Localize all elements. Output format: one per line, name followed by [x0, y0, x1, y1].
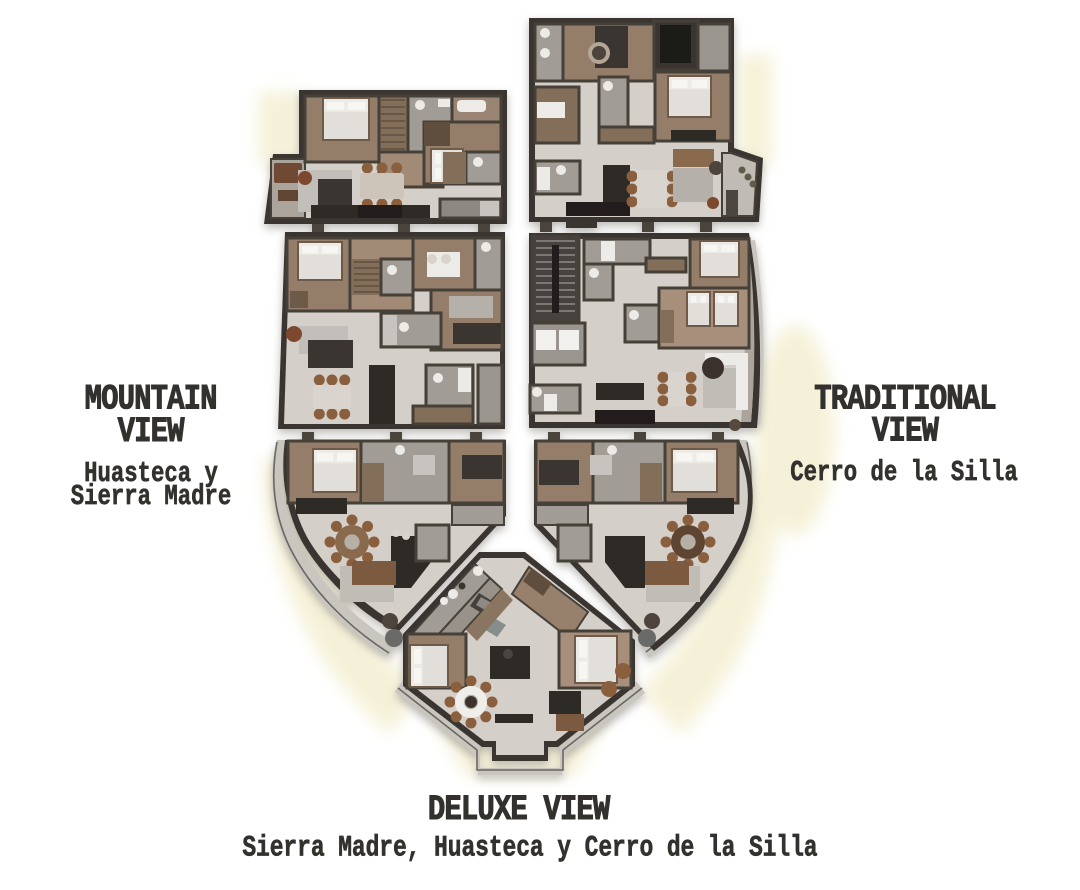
svg-text:Sierra Madre, Huasteca y Cerro: Sierra Madre, Huasteca y Cerro de la Sil… — [242, 832, 817, 866]
svg-text:Cerro de la Silla: Cerro de la Silla — [790, 455, 1017, 489]
svg-text:DELUXE VIEW: DELUXE VIEW — [428, 790, 611, 830]
svg-text:VIEW: VIEW — [872, 411, 940, 451]
svg-text:VIEW: VIEW — [118, 412, 186, 452]
svg-text:Sierra Madre: Sierra Madre — [71, 479, 232, 513]
